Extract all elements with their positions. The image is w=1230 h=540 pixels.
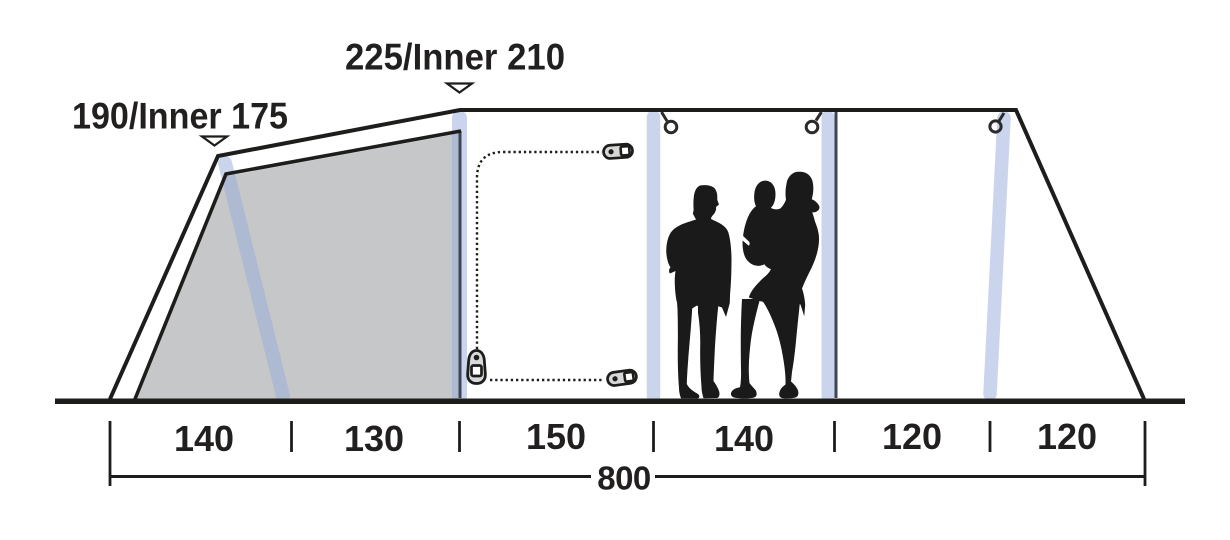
svg-text:150: 150 [526,416,586,457]
svg-text:120: 120 [882,416,942,457]
svg-text:130: 130 [344,418,404,459]
svg-text:800: 800 [597,460,651,497]
svg-text:225/Inner 210: 225/Inner 210 [345,37,565,78]
svg-text:120: 120 [1037,416,1097,457]
svg-text:190/Inner 175: 190/Inner 175 [72,96,288,137]
svg-text:140: 140 [714,418,774,459]
svg-text:140: 140 [174,418,234,459]
